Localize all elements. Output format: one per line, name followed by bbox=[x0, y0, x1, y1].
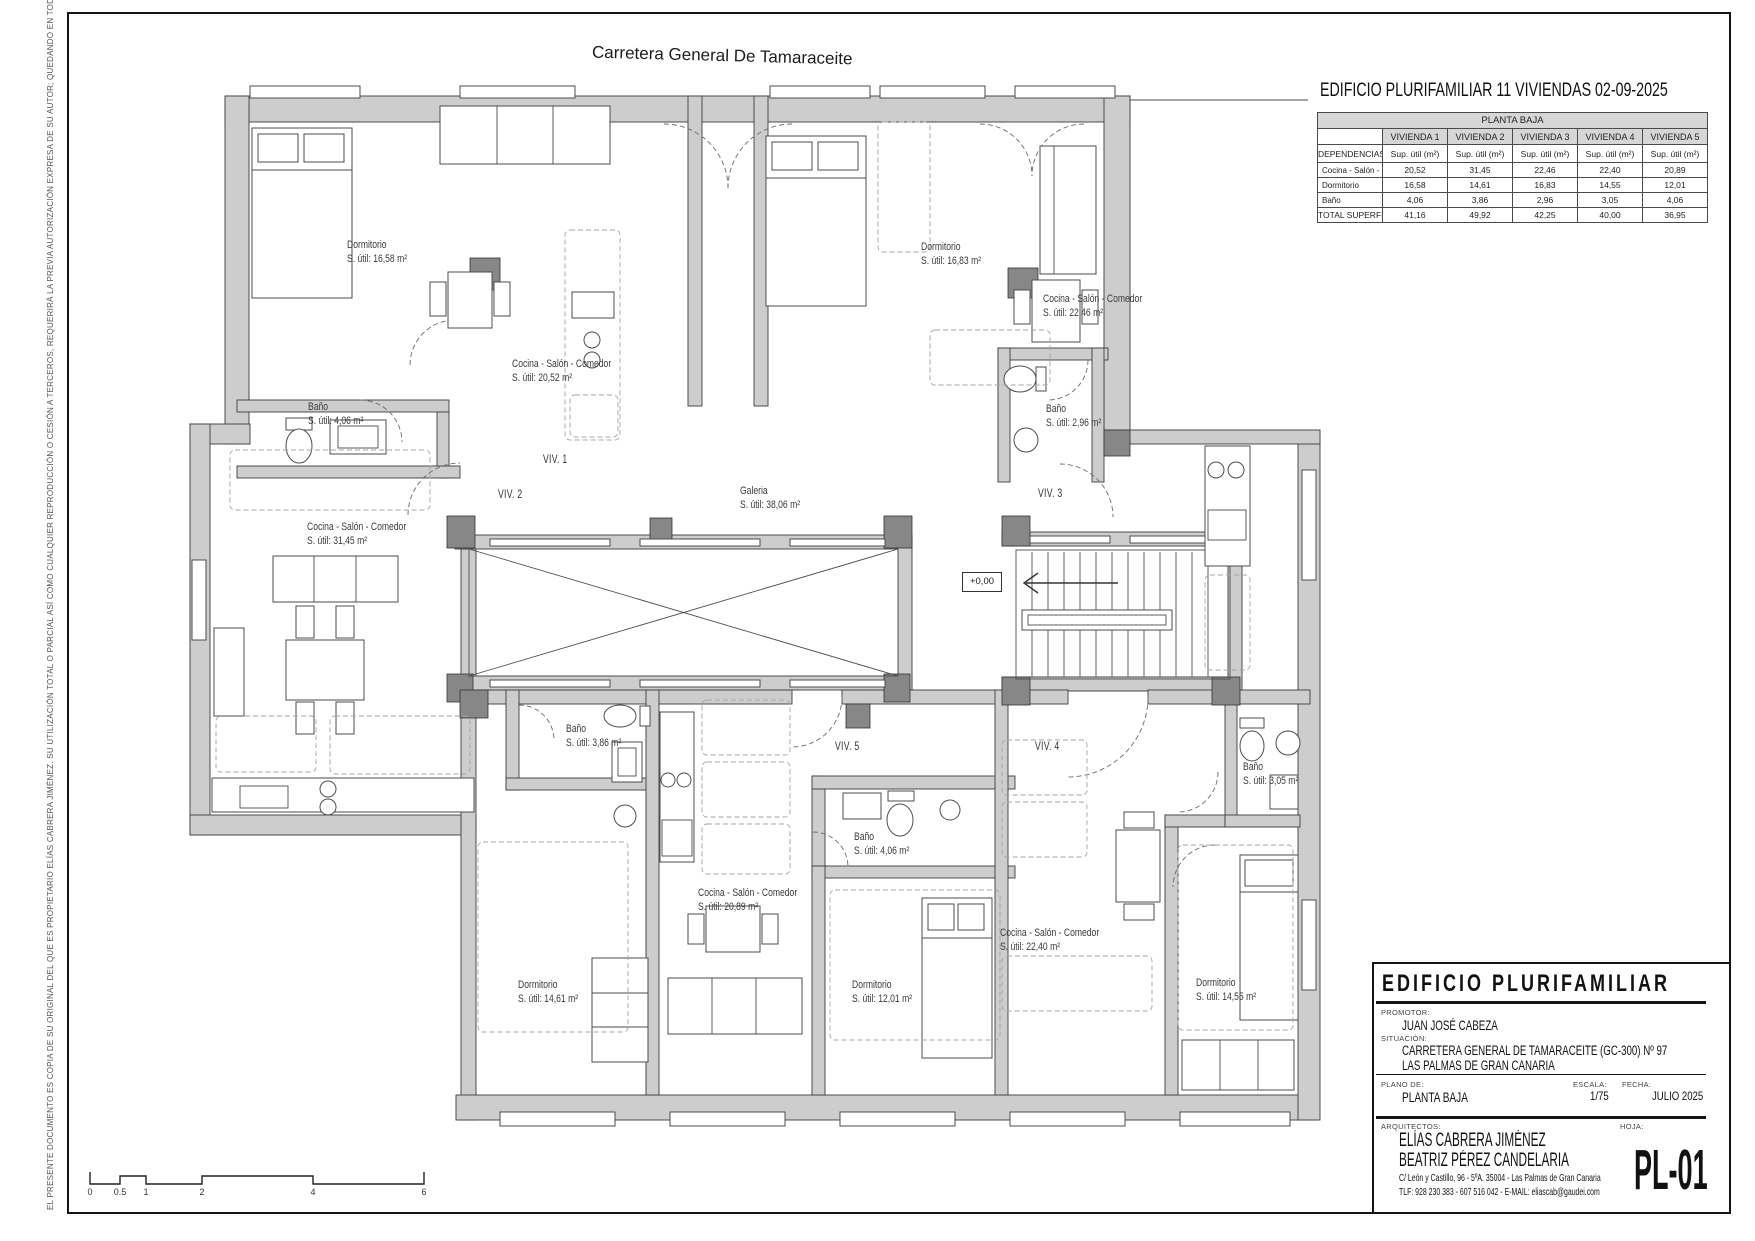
escala-value: 1/75 bbox=[1590, 1089, 1609, 1103]
cell: 3,05 bbox=[1578, 193, 1643, 208]
cell: 2,96 bbox=[1513, 193, 1578, 208]
fecha-label: FECHA: bbox=[1622, 1080, 1651, 1089]
scale-tick: 2 bbox=[199, 1187, 204, 1197]
room-label-galeria: Galeria S. útil: 38,06 m² bbox=[740, 484, 800, 513]
table-row: Baño 4,06 3,86 2,96 3,05 4,06 bbox=[1318, 193, 1708, 208]
col-header: VIVIENDA 1 bbox=[1383, 129, 1448, 145]
cell: 12,01 bbox=[1643, 178, 1708, 193]
sheet-number: PL-01 bbox=[1634, 1138, 1708, 1203]
row-label: Dormitorio bbox=[1318, 178, 1383, 193]
escala-label: ESCALA: bbox=[1573, 1080, 1607, 1089]
unit-label-viv-2: VIV. 2 bbox=[498, 487, 522, 501]
sup-util-header: Sup. útil (m²) bbox=[1448, 145, 1513, 163]
room-name: Dormitorio bbox=[518, 978, 578, 992]
room-area: S. útil: 12,01 m² bbox=[852, 992, 912, 1006]
architect-address: C/ León y Castillo, 96 - 5ºA. 35004 - La… bbox=[1399, 1172, 1601, 1184]
col-header: VIVIENDA 4 bbox=[1578, 129, 1643, 145]
room-label-cocina-2240: Cocina - Salón - Comedor S. útil: 22,40 … bbox=[1000, 926, 1099, 955]
room-area: S. útil: 16,58 m² bbox=[347, 252, 407, 266]
dependencias-header: DEPENDENCIAS bbox=[1318, 145, 1383, 163]
scale-tick: 4 bbox=[310, 1187, 315, 1197]
unit-label-viv-4: VIV. 4 bbox=[1035, 739, 1059, 753]
scale-tick: 0 bbox=[87, 1187, 92, 1197]
cell: 40,00 bbox=[1578, 208, 1643, 223]
room-area: S. útil: 16,83 m² bbox=[921, 254, 981, 268]
room-area: S. útil: 4,06 m² bbox=[854, 844, 909, 858]
room-name: Baño bbox=[1046, 402, 1101, 416]
room-label-bano-406b: Baño S. útil: 4,06 m² bbox=[854, 830, 909, 859]
fecha-value: JULIO 2025 bbox=[1652, 1089, 1703, 1103]
situacion-line2: LAS PALMAS DE GRAN CANARIA bbox=[1402, 1058, 1555, 1073]
cell: 3,86 bbox=[1448, 193, 1513, 208]
cell: 41,16 bbox=[1383, 208, 1448, 223]
room-area: S. útil: 20,52 m² bbox=[512, 371, 611, 385]
room-label-bano-406a: Baño S. útil: 4,06 m² bbox=[308, 400, 363, 429]
col-header: VIVIENDA 5 bbox=[1643, 129, 1708, 145]
room-label-dormitorio-1455: Dormitorio S. útil: 14,55 m² bbox=[1196, 976, 1256, 1005]
room-label-cocina-2089: Cocina - Salón - Comedor S. útil: 20,89 … bbox=[698, 886, 797, 915]
promotor-value: JUAN JOSÉ CABEZA bbox=[1402, 1017, 1498, 1033]
room-name: Dormitorio bbox=[347, 238, 407, 252]
table-row-subheader: DEPENDENCIAS Sup. útil (m²) Sup. útil (m… bbox=[1318, 145, 1708, 163]
divider bbox=[1376, 1074, 1706, 1075]
room-label-dormitorio-1461: Dormitorio S. útil: 14,61 m² bbox=[518, 978, 578, 1007]
situacion-line1: CARRETERA GENERAL DE TAMARACEITE (GC-300… bbox=[1402, 1043, 1667, 1058]
room-name: Cocina - Salón - Comedor bbox=[698, 886, 797, 900]
level-marker: +0,00 bbox=[962, 572, 1002, 592]
situacion-label: SITUACIÓN: bbox=[1381, 1034, 1427, 1043]
scale-tick: 0.5 bbox=[114, 1187, 127, 1197]
room-label-dormitorio-1201: Dormitorio S. útil: 12,01 m² bbox=[852, 978, 912, 1007]
cell: 16,83 bbox=[1513, 178, 1578, 193]
room-label-bano-386: Baño S. útil: 3,86 m² bbox=[566, 722, 621, 751]
drawing-sheet: { "sheet": { "street_label": "Carretera … bbox=[0, 0, 1755, 1241]
divider bbox=[1376, 1001, 1706, 1004]
table-row-units: VIVIENDA 1 VIVIENDA 2 VIVIENDA 3 VIVIEND… bbox=[1318, 129, 1708, 145]
room-label-bano-305: Baño S. útil: 3,05 m² bbox=[1243, 760, 1298, 789]
room-area: S. útil: 3,86 m² bbox=[566, 736, 621, 750]
room-name: Dormitorio bbox=[1196, 976, 1256, 990]
table-title: PLANTA BAJA bbox=[1318, 113, 1708, 129]
room-label-dormitorio-1658: Dormitorio S. útil: 16,58 m² bbox=[347, 238, 407, 267]
row-label: Baño bbox=[1318, 193, 1383, 208]
cell: 42,25 bbox=[1513, 208, 1578, 223]
table-row-total: TOTAL SUPERFICIE ÚTIL 41,16 49,92 42,25 … bbox=[1318, 208, 1708, 223]
room-name: Cocina - Salón - Comedor bbox=[1043, 292, 1142, 306]
room-name: Baño bbox=[566, 722, 621, 736]
room-area: S. útil: 3,05 m² bbox=[1243, 774, 1298, 788]
empty-cell bbox=[1318, 129, 1383, 145]
room-area: S. útil: 22,40 m² bbox=[1000, 940, 1099, 954]
room-name: Dormitorio bbox=[852, 978, 912, 992]
promotor-label: PROMOTOR: bbox=[1381, 1008, 1430, 1017]
plano-label: PLANO DE: bbox=[1381, 1080, 1424, 1089]
plano-value: PLANTA BAJA bbox=[1402, 1089, 1468, 1105]
cell: 4,06 bbox=[1643, 193, 1708, 208]
table-row: Cocina - Salón - Comedor 20,52 31,45 22,… bbox=[1318, 163, 1708, 178]
unit-label-viv-1: VIV. 1 bbox=[543, 452, 567, 466]
architect-name-2: BEATRIZ PÉREZ CANDELARIA bbox=[1399, 1150, 1569, 1172]
room-name: Baño bbox=[308, 400, 363, 414]
room-name: Cocina - Salón - Comedor bbox=[512, 357, 611, 371]
area-table: PLANTA BAJA VIVIENDA 1 VIVIENDA 2 VIVIEN… bbox=[1317, 112, 1708, 223]
table-row: Dormitorio 16,58 14,61 16,83 14,55 12,01 bbox=[1318, 178, 1708, 193]
cell: 20,52 bbox=[1383, 163, 1448, 178]
sup-util-header: Sup. útil (m²) bbox=[1383, 145, 1448, 163]
room-label-cocina-3145: Cocina - Salón - Comedor S. útil: 31,45 … bbox=[307, 520, 406, 549]
room-area: S. útil: 14,55 m² bbox=[1196, 990, 1256, 1004]
cell: 49,92 bbox=[1448, 208, 1513, 223]
cell: 16,58 bbox=[1383, 178, 1448, 193]
scale-tick: 1 bbox=[143, 1187, 148, 1197]
scale-tick: 6 bbox=[421, 1187, 426, 1197]
room-area: S. útil: 38,06 m² bbox=[740, 498, 800, 512]
room-label-bano-296: Baño S. útil: 2,96 m² bbox=[1046, 402, 1101, 431]
room-area: S. útil: 14,61 m² bbox=[518, 992, 578, 1006]
unit-label-viv-5: VIV. 5 bbox=[835, 739, 859, 753]
sup-util-header: Sup. útil (m²) bbox=[1578, 145, 1643, 163]
courtyard bbox=[469, 549, 898, 676]
divider bbox=[1376, 1116, 1706, 1119]
room-name: Dormitorio bbox=[921, 240, 981, 254]
col-header: VIVIENDA 2 bbox=[1448, 129, 1513, 145]
unit-label-viv-3: VIV. 3 bbox=[1038, 486, 1062, 500]
hoja-label: HOJA: bbox=[1620, 1122, 1644, 1131]
cell: 22,40 bbox=[1578, 163, 1643, 178]
architect-contact: TLF: 928 230 383 - 607 516 042 - E-MAIL:… bbox=[1399, 1186, 1600, 1198]
table-row-title: PLANTA BAJA bbox=[1318, 113, 1708, 129]
room-name: Baño bbox=[1243, 760, 1298, 774]
col-header: VIVIENDA 3 bbox=[1513, 129, 1578, 145]
room-label-cocina-2246: Cocina - Salón - Comedor S. útil: 22,46 … bbox=[1043, 292, 1142, 321]
cell: 31,45 bbox=[1448, 163, 1513, 178]
staircase bbox=[1016, 550, 1230, 679]
room-name: Cocina - Salón - Comedor bbox=[307, 520, 406, 534]
room-area: S. útil: 2,96 m² bbox=[1046, 416, 1101, 430]
area-table-wrap: PLANTA BAJA VIVIENDA 1 VIVIENDA 2 VIVIEN… bbox=[1317, 112, 1708, 223]
room-area: S. útil: 31,45 m² bbox=[307, 534, 406, 548]
cell: 14,61 bbox=[1448, 178, 1513, 193]
cell: 20,89 bbox=[1643, 163, 1708, 178]
room-area: S. útil: 22,46 m² bbox=[1043, 306, 1142, 320]
room-name: Baño bbox=[854, 830, 909, 844]
room-label-dormitorio-1683: Dormitorio S. útil: 16,83 m² bbox=[921, 240, 981, 269]
room-name: Cocina - Salón - Comedor bbox=[1000, 926, 1099, 940]
room-label-cocina-2052: Cocina - Salón - Comedor S. útil: 20,52 … bbox=[512, 357, 611, 386]
row-label: Cocina - Salón - Comedor bbox=[1318, 163, 1383, 178]
total-label: TOTAL SUPERFICIE ÚTIL bbox=[1318, 208, 1383, 223]
cell: 4,06 bbox=[1383, 193, 1448, 208]
architect-name-1: ELÍAS CABRERA JIMÉNEZ bbox=[1399, 1130, 1546, 1152]
scale-bar bbox=[90, 1172, 424, 1184]
sup-util-header: Sup. útil (m²) bbox=[1643, 145, 1708, 163]
room-name: Galeria bbox=[740, 484, 800, 498]
room-area: S. útil: 20,89 m² bbox=[698, 900, 797, 914]
cell: 14,55 bbox=[1578, 178, 1643, 193]
room-area: S. útil: 4,06 m² bbox=[308, 414, 363, 428]
cell: 22,46 bbox=[1513, 163, 1578, 178]
cell: 36,95 bbox=[1643, 208, 1708, 223]
sup-util-header: Sup. útil (m²) bbox=[1513, 145, 1578, 163]
project-title: EDIFICIO PLURIFAMILIAR bbox=[1382, 970, 1670, 998]
